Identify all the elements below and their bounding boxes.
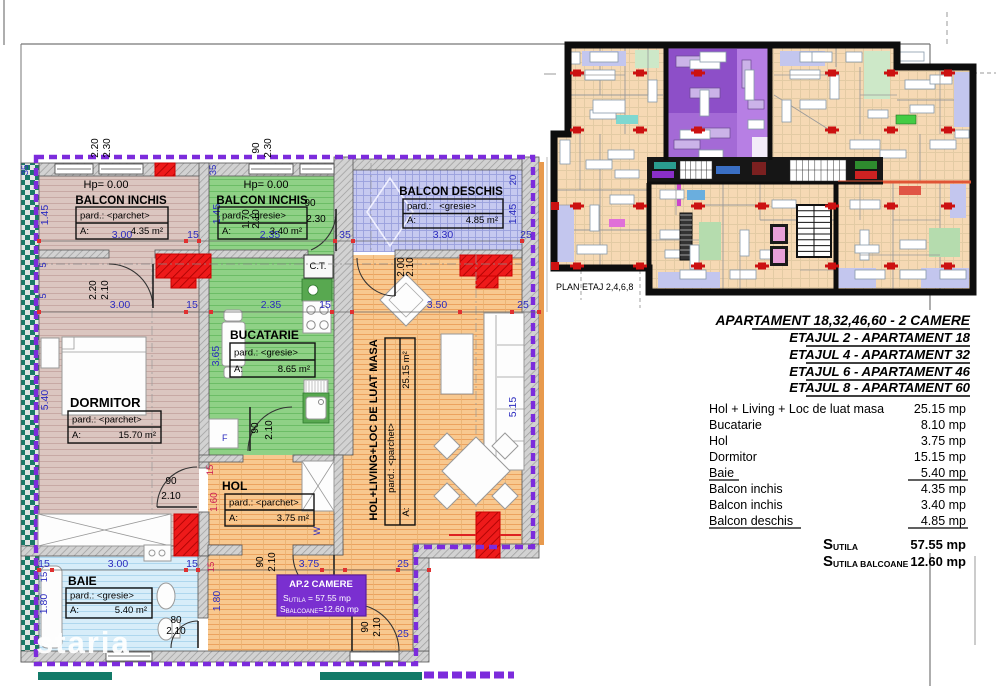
svg-text:staria: staria (36, 625, 131, 660)
svg-text:1.80: 1.80 (38, 594, 50, 615)
svg-text:20: 20 (508, 175, 519, 186)
svg-text:57.55 mp: 57.55 mp (910, 537, 966, 552)
svg-text:A:: A: (80, 226, 89, 237)
svg-text:W: W (312, 526, 322, 535)
svg-text:90: 90 (251, 142, 262, 154)
svg-text:3.00: 3.00 (110, 299, 131, 311)
svg-text:A:: A: (407, 215, 416, 226)
svg-text:4.85 m²: 4.85 m² (466, 215, 498, 226)
svg-text:ETAJUL 8 - APARTAMENT 60: ETAJUL 8 - APARTAMENT 60 (789, 380, 970, 395)
svg-text:12.60 mp: 12.60 mp (910, 554, 966, 569)
svg-text:2.10: 2.10 (405, 257, 416, 277)
svg-text:5: 5 (38, 262, 49, 267)
svg-text:5.40 mp: 5.40 mp (921, 466, 966, 480)
svg-text:15.70 m²: 15.70 m² (119, 430, 157, 441)
svg-text:90: 90 (360, 621, 371, 633)
svg-text:5.15: 5.15 (507, 397, 519, 418)
svg-text:pard.: <gresie>: pard.: <gresie> (70, 591, 134, 602)
svg-text:Baie: Baie (709, 466, 734, 480)
svg-text:90: 90 (255, 556, 266, 568)
svg-text:15.15 mp: 15.15 mp (914, 450, 966, 464)
svg-text:35: 35 (339, 229, 351, 241)
svg-text:3.75: 3.75 (299, 558, 320, 570)
svg-text:15: 15 (206, 562, 217, 573)
svg-text:Balcon inchis: Balcon inchis (709, 482, 783, 496)
svg-text:35: 35 (20, 165, 31, 176)
svg-text:3.00: 3.00 (108, 558, 129, 570)
svg-text:pard.: <parchet>: pard.: <parchet> (80, 211, 150, 222)
svg-text:25: 25 (520, 229, 532, 241)
svg-text:BUCATARIE: BUCATARIE (230, 328, 299, 342)
svg-text:pard.: <gresie>: pard.: <gresie> (234, 348, 298, 359)
svg-text:ETAJUL 6 - APARTAMENT 46: ETAJUL 6 - APARTAMENT 46 (789, 364, 970, 379)
svg-text:2.10: 2.10 (264, 420, 275, 440)
svg-text:Hol: Hol (709, 434, 728, 448)
svg-text:25: 25 (517, 299, 529, 311)
svg-text:1.45: 1.45 (507, 204, 519, 225)
svg-text:2.20: 2.20 (90, 138, 101, 158)
svg-text:2.30: 2.30 (263, 138, 274, 158)
svg-text:Hp= 0.00: Hp= 0.00 (244, 179, 289, 191)
svg-text:15: 15 (186, 558, 198, 570)
svg-text:3.75 mp: 3.75 mp (921, 434, 966, 448)
svg-text:Bucatarie: Bucatarie (709, 418, 762, 432)
svg-text:HOL: HOL (222, 479, 247, 493)
svg-text:3.30: 3.30 (433, 229, 454, 241)
svg-text:F: F (222, 433, 228, 443)
svg-text:2.30: 2.30 (306, 214, 326, 225)
svg-text:4.35 mp: 4.35 mp (921, 482, 966, 496)
svg-text:15: 15 (319, 299, 331, 311)
svg-text:25: 25 (397, 628, 409, 640)
svg-text:3.75 m²: 3.75 m² (277, 513, 309, 524)
svg-text:pard.: <parchet>: pard.: <parchet> (72, 415, 142, 426)
svg-text:25.15 m²: 25.15 m² (401, 351, 412, 389)
svg-text:15: 15 (39, 572, 50, 583)
svg-text:15: 15 (186, 299, 198, 311)
svg-text:2.10: 2.10 (267, 552, 278, 572)
svg-text:25: 25 (397, 558, 409, 570)
svg-text:2.20: 2.20 (88, 280, 99, 300)
svg-text:90: 90 (165, 476, 177, 487)
svg-text:5: 5 (38, 293, 49, 298)
svg-text:BALCON DESCHIS: BALCON DESCHIS (399, 186, 503, 198)
svg-text:2.10: 2.10 (166, 626, 186, 637)
svg-text:15: 15 (205, 465, 216, 476)
svg-text:4.35 m²: 4.35 m² (131, 226, 163, 237)
svg-text:BAIE: BAIE (68, 574, 97, 588)
svg-text:A:: A: (72, 430, 81, 441)
svg-text:35: 35 (208, 165, 219, 176)
svg-text:Hp= 0.00: Hp= 0.00 (84, 179, 129, 191)
svg-text:PLAN ETAJ 2,4,6,8: PLAN ETAJ 2,4,6,8 (556, 282, 633, 292)
svg-text:A:: A: (70, 605, 79, 616)
svg-text:8.65 m²: 8.65 m² (278, 364, 310, 375)
svg-text:1.80: 1.80 (211, 591, 223, 612)
svg-text:Balcon inchis: Balcon inchis (709, 498, 783, 512)
svg-text:5.40 m²: 5.40 m² (115, 605, 147, 616)
svg-text:pard.: <parchet>: pard.: <parchet> (386, 423, 397, 493)
svg-text:A:: A: (222, 226, 231, 237)
svg-text:C.T.: C.T. (310, 261, 327, 272)
svg-text:A:: A: (401, 508, 412, 517)
svg-text:15: 15 (187, 229, 199, 241)
svg-text:90: 90 (250, 422, 261, 434)
svg-text:DORMITOR: DORMITOR (70, 395, 141, 410)
svg-text:80: 80 (170, 615, 182, 626)
svg-text:A:: A: (229, 513, 238, 524)
svg-text:4.85 mp: 4.85 mp (921, 514, 966, 528)
svg-text:3.65: 3.65 (210, 346, 222, 367)
svg-text:A:: A: (234, 364, 243, 375)
svg-text:2.30: 2.30 (102, 138, 113, 158)
svg-text:1.60: 1.60 (209, 492, 220, 512)
svg-text:ETAJUL 4 - APARTAMENT 32: ETAJUL 4 - APARTAMENT 32 (789, 347, 970, 362)
svg-text:2.35: 2.35 (261, 299, 282, 311)
svg-text:Hol + Living + Loc de luat mas: Hol + Living + Loc de luat masa (709, 402, 884, 416)
svg-text:HOL+LIVING+LOC DE LUAT MASA: HOL+LIVING+LOC DE LUAT MASA (368, 339, 380, 520)
svg-text:1.45: 1.45 (39, 205, 51, 226)
svg-text:15: 15 (38, 558, 50, 570)
svg-text:25.15 mp: 25.15 mp (914, 402, 966, 416)
svg-text:BALCON INCHIS: BALCON INCHIS (75, 195, 167, 207)
svg-text:3.40 m²: 3.40 m² (270, 226, 302, 237)
svg-text:Dormitor: Dormitor (709, 450, 757, 464)
svg-text:pard.: <gresie>: pard.: <gresie> (407, 201, 477, 212)
svg-text:3.40 mp: 3.40 mp (921, 498, 966, 512)
svg-text:2.10: 2.10 (161, 491, 181, 502)
svg-text:pard.: <gresie>: pard.: <gresie> (222, 211, 286, 222)
svg-text:2.10: 2.10 (100, 280, 111, 300)
svg-text:3.50: 3.50 (427, 299, 448, 311)
svg-text:Balcon deschis: Balcon deschis (709, 514, 793, 528)
svg-text:2.10: 2.10 (372, 617, 383, 637)
svg-text:ETAJUL 2 - APARTAMENT 18: ETAJUL 2 - APARTAMENT 18 (789, 330, 970, 345)
svg-text:APARTAMENT 18,32,46,60 - 2 CAM: APARTAMENT 18,32,46,60 - 2 CAMERE (714, 313, 970, 328)
svg-text:8.10 mp: 8.10 mp (921, 418, 966, 432)
svg-text:5.40: 5.40 (39, 390, 51, 411)
svg-text:BALCON INCHIS: BALCON INCHIS (216, 195, 308, 207)
svg-text:pard.: <parchet>: pard.: <parchet> (229, 498, 299, 509)
svg-text:AP.2 CAMERE: AP.2 CAMERE (289, 579, 353, 590)
